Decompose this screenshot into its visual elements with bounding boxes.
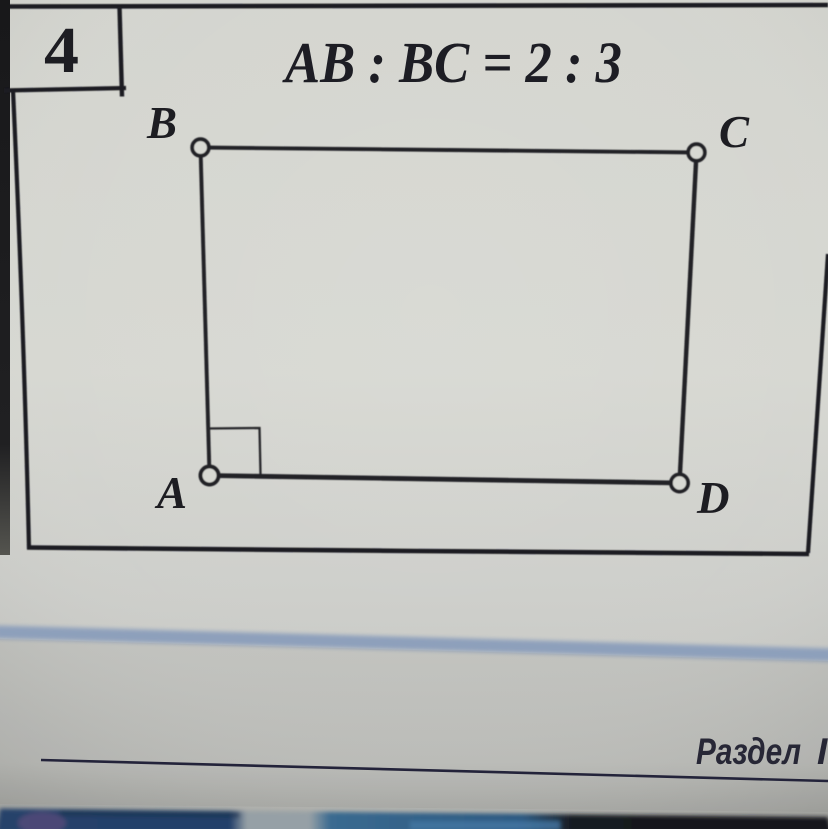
svg-text:D: D: [696, 473, 730, 523]
svg-text:A: A: [154, 468, 187, 518]
svg-text:II: II: [817, 731, 828, 772]
svg-text:AB : BC = 2 : 3: AB : BC = 2 : 3: [282, 30, 622, 95]
svg-text:Раздел: Раздел: [696, 731, 801, 772]
svg-text:4: 4: [44, 14, 79, 87]
svg-text:B: B: [146, 98, 177, 148]
svg-text:C: C: [719, 107, 750, 157]
